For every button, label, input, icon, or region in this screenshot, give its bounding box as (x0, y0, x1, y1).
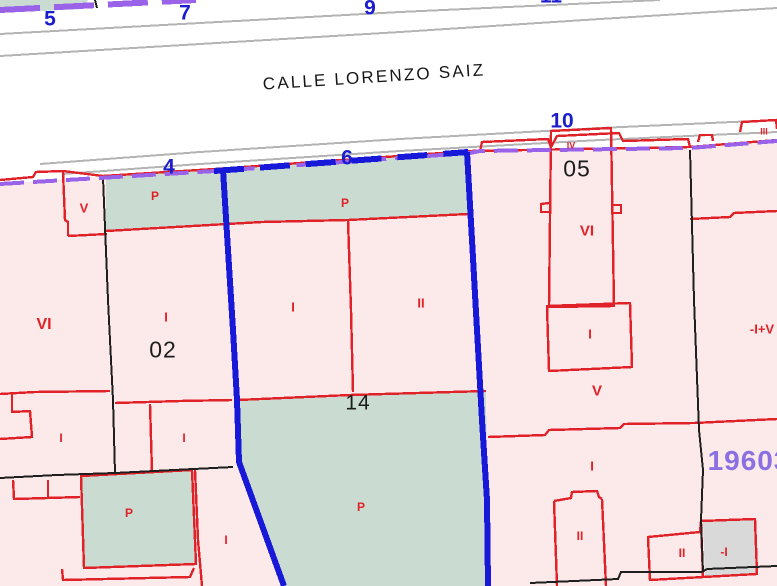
parcel-fills (0, 0, 777, 586)
map-geometry (0, 0, 777, 586)
cadastral-map-canvas[interactable]: CALLE LORENZO SAIZ 5 7 9 11 10 4 6 02 05… (0, 0, 777, 586)
